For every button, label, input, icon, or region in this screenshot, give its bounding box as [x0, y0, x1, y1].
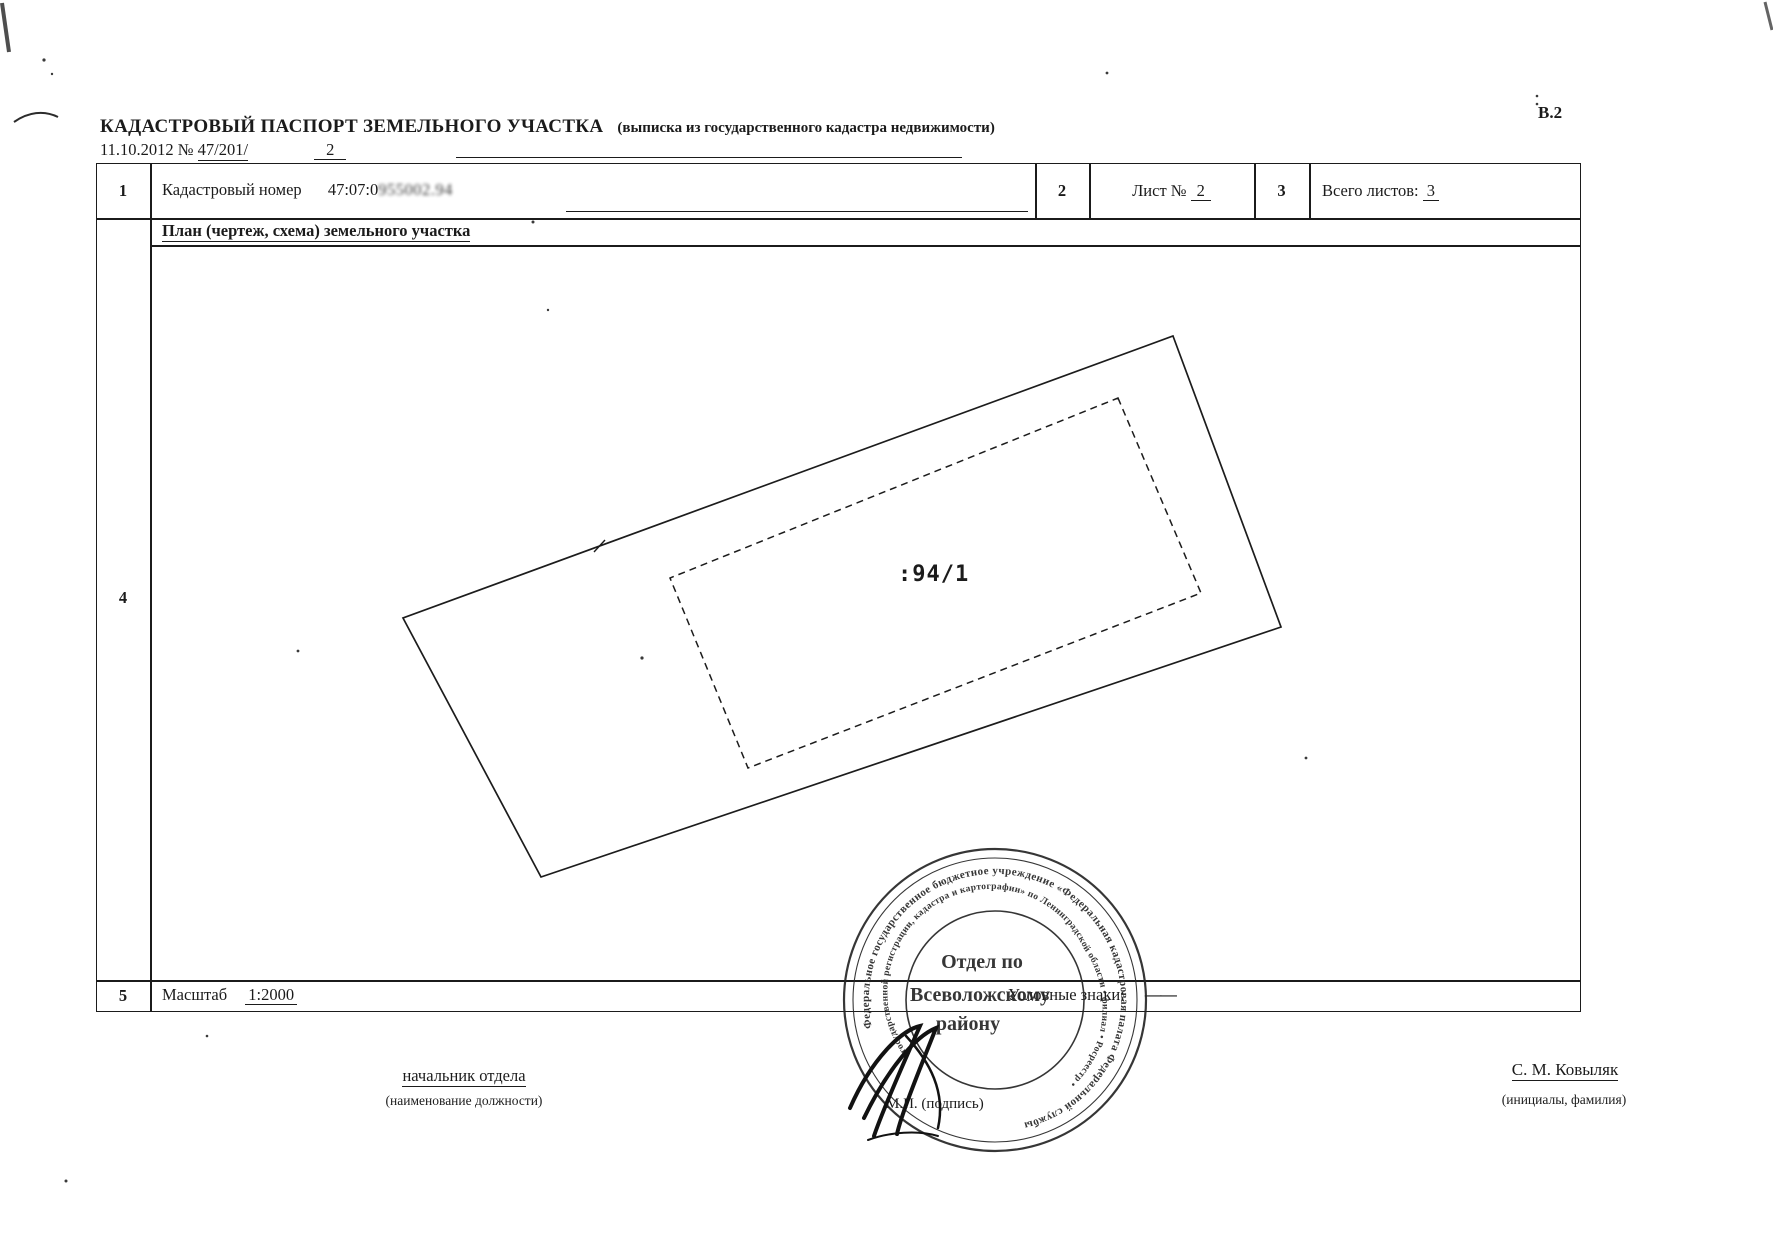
parcel-label: :94/1: [898, 562, 969, 587]
sheet-col-number: 2: [1035, 181, 1089, 201]
total-sheets-label: Всего листов:: [1322, 181, 1419, 200]
row1-fill-line: [566, 211, 1028, 212]
table-frame: [96, 163, 1581, 1012]
signer-name: С. М. Ковыляк: [1512, 1060, 1618, 1081]
date-fill-line: [456, 157, 962, 158]
doc-date: 11.10.2012: [100, 140, 174, 159]
row2-bottom-line: [150, 245, 1581, 247]
scale-label: Масштаб: [162, 985, 227, 1004]
r1-div-4: [1309, 163, 1311, 218]
document-page: В.2 КАДАСТРОВЫЙ ПАСПОРТ ЗЕМЕЛЬНОГО УЧАСТ…: [0, 0, 1773, 1253]
sheet-value: 2: [1191, 181, 1211, 201]
sheet-label: Лист №: [1132, 181, 1186, 200]
row1-bottom-line: [96, 218, 1581, 220]
signature-scribble: [850, 1026, 940, 1140]
legend-dash: ——: [1145, 985, 1176, 1004]
total-sheets-value: 3: [1423, 181, 1439, 201]
page-title: КАДАСТРОВЫЙ ПАСПОРТ ЗЕМЕЛЬНОГО УЧАСТКА: [100, 116, 603, 137]
doc-number-suffix: 2: [314, 140, 346, 160]
scale-value: 1:2000: [245, 985, 297, 1005]
signer-name-caption: (инициалы, фамилия): [1476, 1092, 1652, 1108]
doc-number: 47/201/: [198, 140, 248, 161]
row5-number: 5: [96, 986, 150, 1006]
cadastral-number-label: Кадастровый номер: [162, 180, 302, 199]
total-col-number: 3: [1254, 181, 1309, 201]
stamp-center-line3: району: [936, 1013, 1000, 1035]
row1-number: 1: [96, 181, 150, 201]
stamp-place-label: М.П. (подпись): [886, 1096, 984, 1113]
cadastral-number-smudged: 955002.94: [378, 180, 453, 199]
signer-position-caption: (наименование должности): [358, 1093, 570, 1109]
cadastral-number-prefix: 47:07:0: [328, 180, 378, 199]
col-divider: [150, 163, 152, 1012]
plan-section-header: План (чертеж, схема) земельного участка: [162, 221, 470, 242]
number-sign: №: [178, 140, 194, 159]
page-subtitle: (выписка из государственного кадастра не…: [617, 120, 994, 136]
row5-top-line: [96, 980, 1581, 982]
signer-position: начальник отдела: [402, 1066, 525, 1087]
legend-label: Условные знаки:: [1008, 985, 1125, 1004]
form-code: В.2: [1538, 103, 1562, 123]
row4-number: 4: [96, 588, 150, 608]
